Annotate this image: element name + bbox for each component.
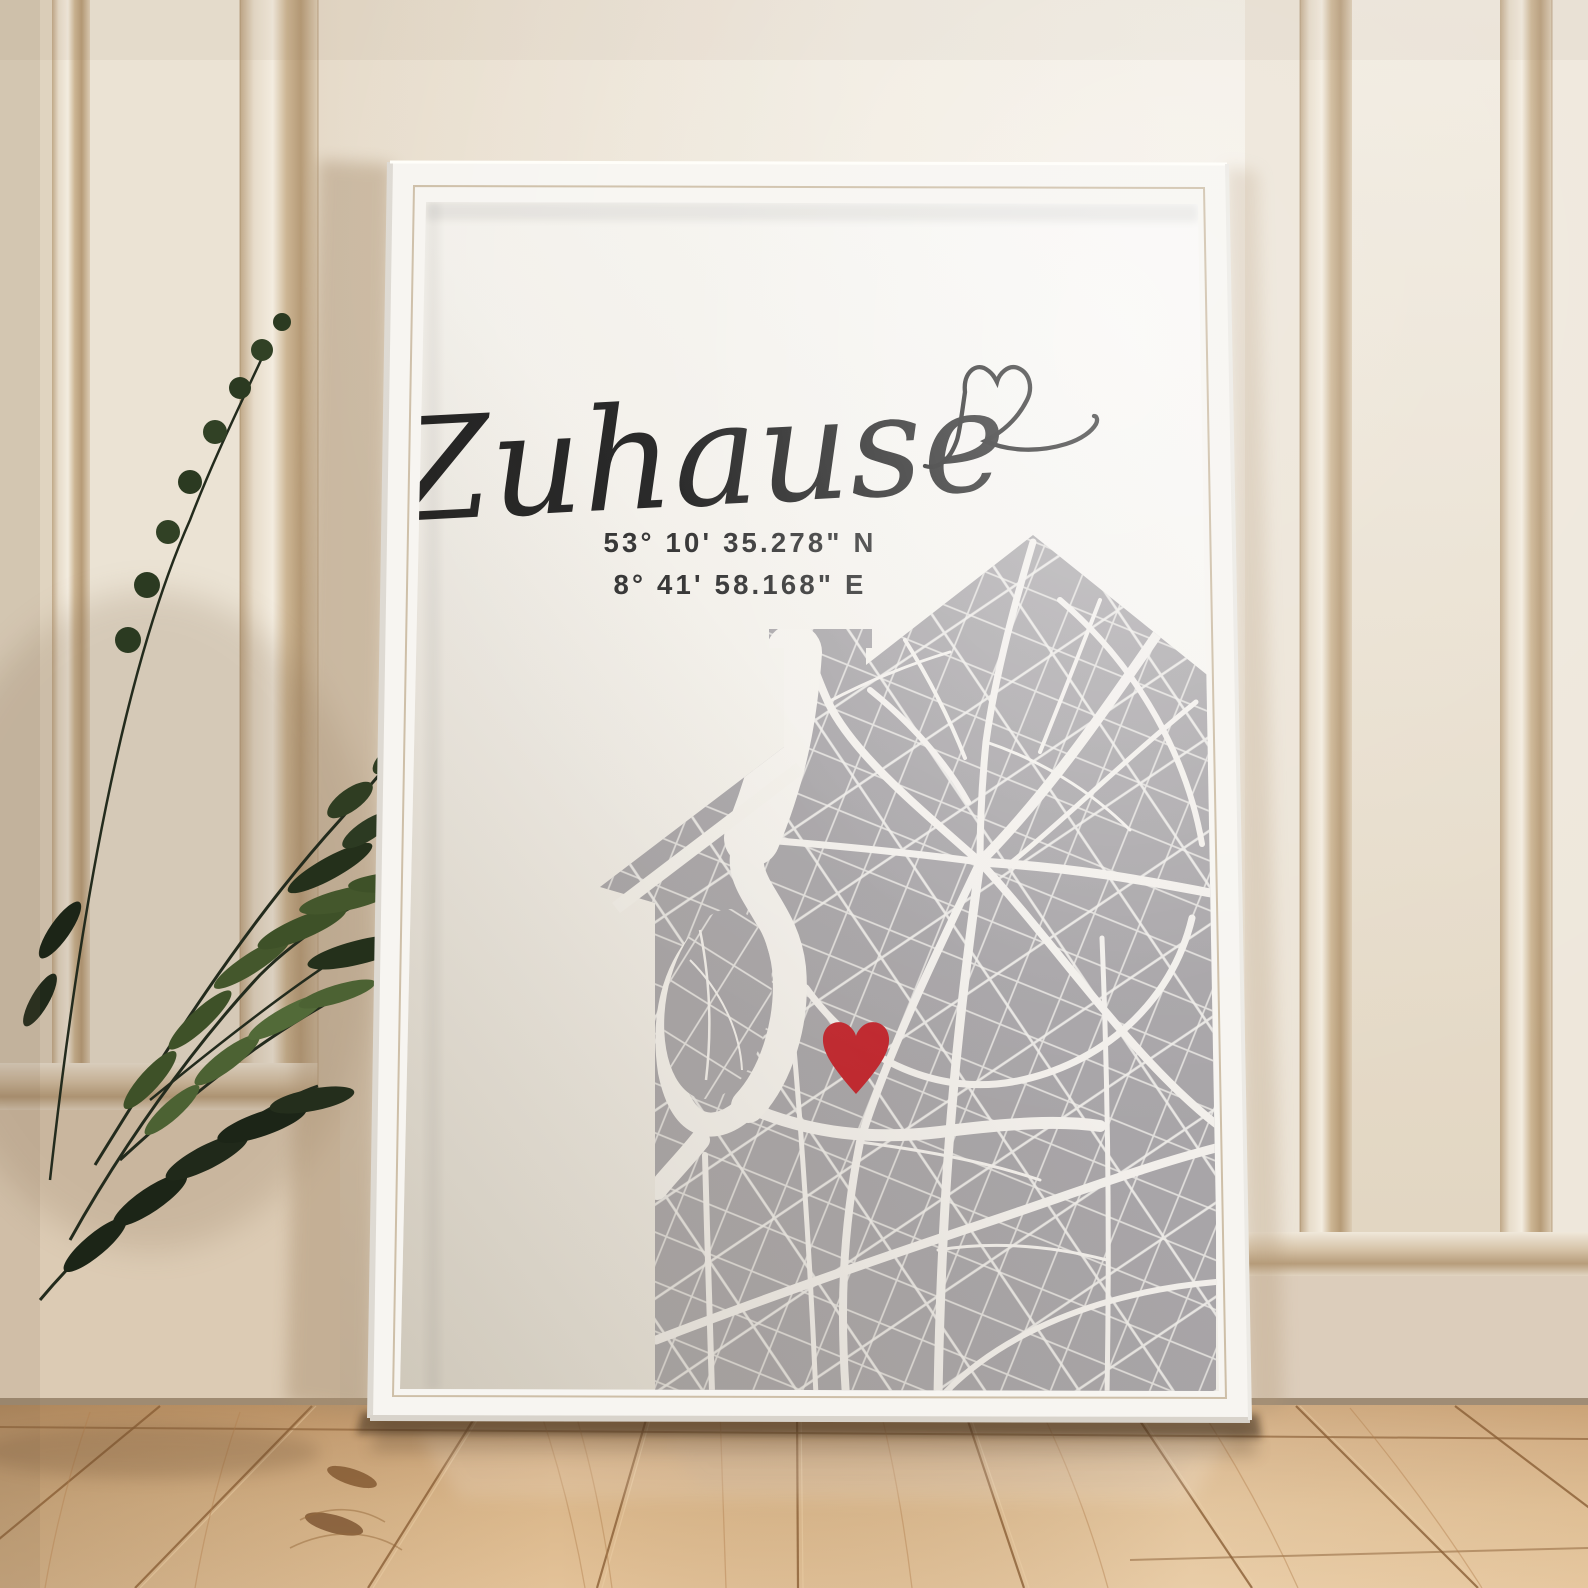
- ambient-light: [0, 0, 1588, 1588]
- vignette-left: [0, 0, 40, 1588]
- scene-svg: Zuhause 53° 10' 35.278" N 8° 41' 58.168"…: [0, 0, 1588, 1588]
- room-scene: Zuhause 53° 10' 35.278" N 8° 41' 58.168"…: [0, 0, 1588, 1588]
